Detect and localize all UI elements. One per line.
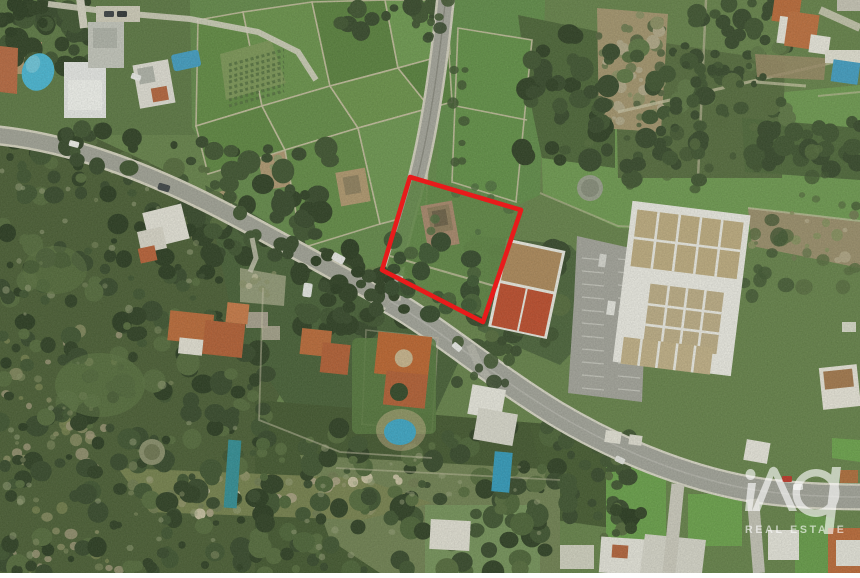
svg-text:REAL ESTATE: REAL ESTATE bbox=[745, 524, 847, 536]
